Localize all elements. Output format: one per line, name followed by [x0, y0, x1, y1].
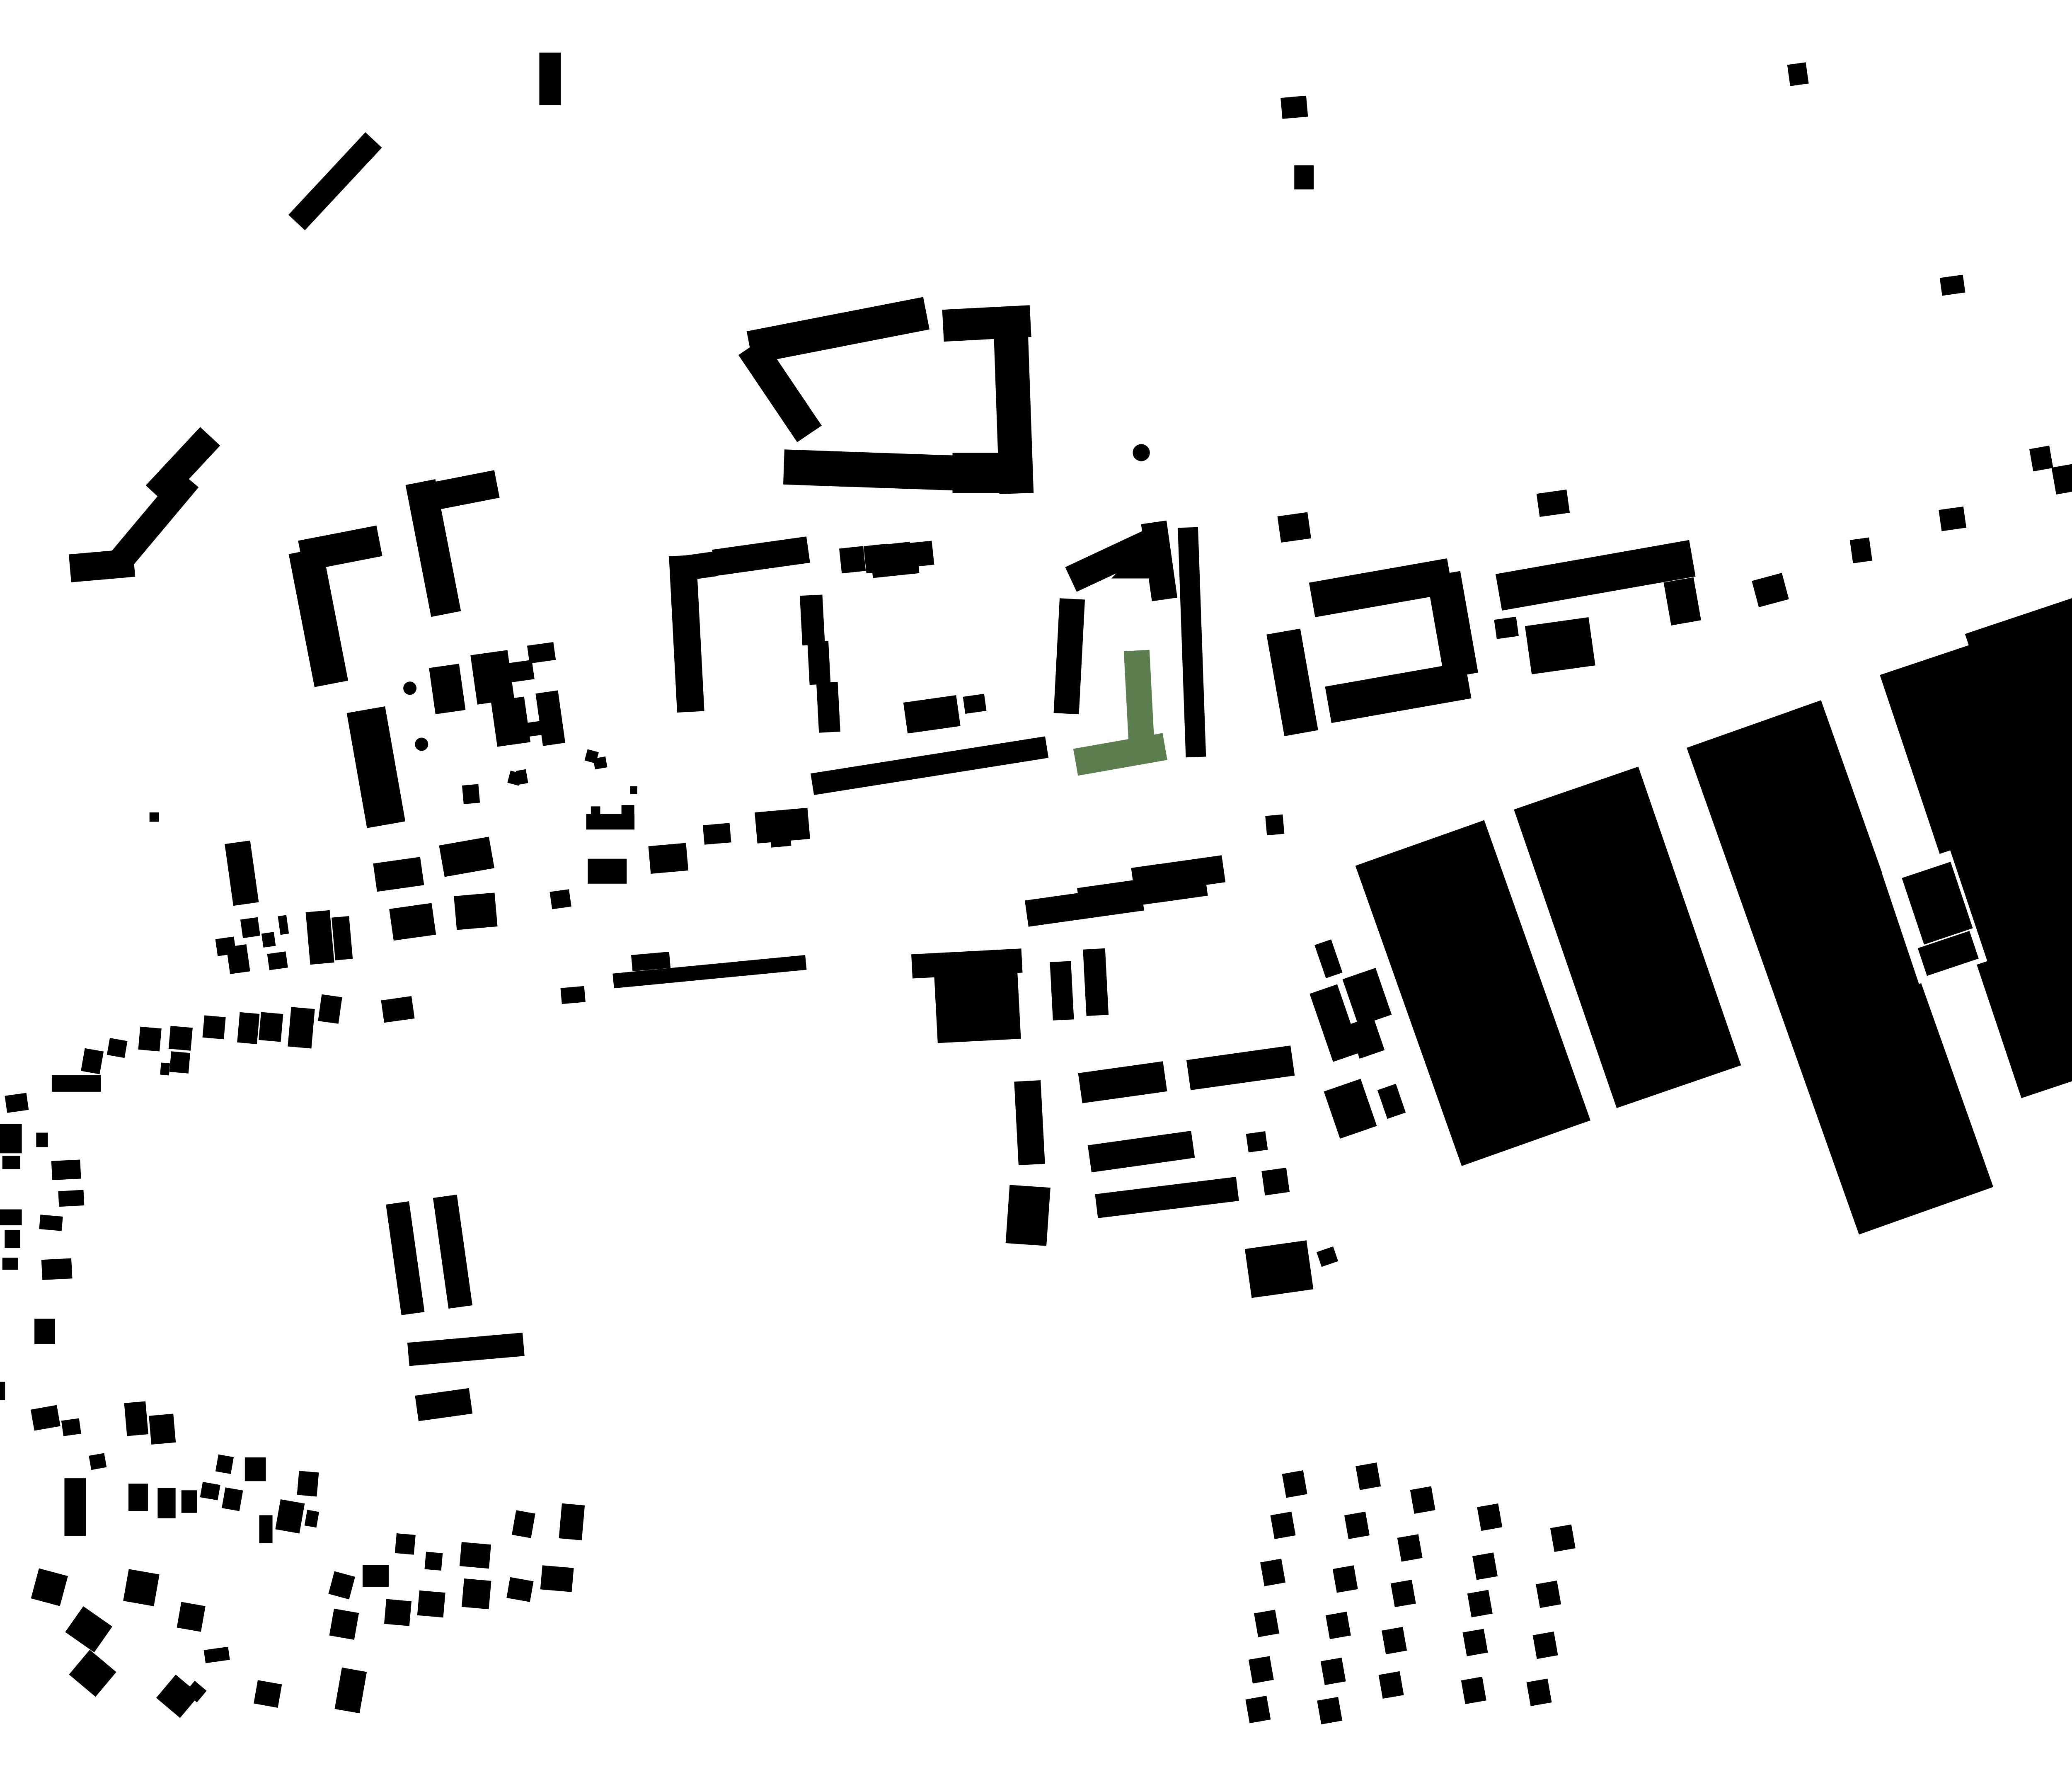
building-footprint	[261, 932, 276, 948]
building-footprint	[417, 1590, 445, 1617]
building-footprint	[81, 1048, 104, 1074]
building-footprint	[1787, 62, 1809, 86]
grid-building-dot	[1410, 1486, 1435, 1514]
grid-building-dot	[1260, 1559, 1285, 1586]
building-footprint	[329, 1609, 359, 1640]
building-footprint	[288, 1007, 315, 1048]
building-footprint	[783, 449, 966, 491]
building-footprint	[1261, 1168, 1290, 1195]
building-footprint	[200, 1482, 220, 1501]
building-footprint	[703, 823, 731, 844]
building-footprint	[1537, 490, 1570, 517]
building-footprint	[39, 1215, 63, 1231]
small-building-dot	[415, 738, 428, 751]
building-footprint	[41, 1258, 73, 1280]
building-footprint	[953, 453, 1031, 493]
building-footprint	[203, 1016, 226, 1040]
building-footprint	[2, 1258, 18, 1270]
building-footprint	[0, 1210, 22, 1226]
grid-building-dot	[1397, 1534, 1423, 1561]
building-footprint	[1246, 1131, 1268, 1152]
building-footprint	[1280, 96, 1308, 119]
building-footprint	[816, 682, 840, 733]
grid-building-dot	[1550, 1525, 1576, 1552]
building-footprint	[1494, 617, 1519, 639]
building-footprint	[1939, 507, 1966, 531]
building-footprint	[318, 994, 342, 1024]
building-footprint	[306, 910, 334, 965]
building-footprint	[0, 1124, 22, 1153]
grid-building-dot	[1356, 1462, 1381, 1490]
building-footprint	[36, 1133, 48, 1147]
building-footprint	[934, 966, 1021, 1043]
building-footprint	[549, 889, 571, 909]
grid-building-dot	[1533, 1632, 1558, 1659]
grid-building-dot	[1249, 1656, 1274, 1683]
building-footprint	[1083, 948, 1109, 1016]
building-footprint	[177, 1602, 206, 1632]
building-footprint	[462, 1578, 491, 1609]
building-footprint	[942, 305, 1031, 342]
building-footprint	[1294, 165, 1314, 189]
grid-building-dot	[1379, 1671, 1404, 1699]
building-footprint	[138, 1027, 161, 1052]
grid-building-dot	[1326, 1612, 1351, 1639]
building-footprint	[384, 1599, 411, 1626]
grid-building-dot	[1254, 1610, 1279, 1637]
highlighted-site-building	[1124, 650, 1154, 741]
grid-building-dot	[1467, 1590, 1493, 1617]
building-footprint	[1014, 1080, 1045, 1165]
small-building-dot	[1133, 444, 1150, 461]
building-footprint	[1278, 512, 1311, 543]
building-footprint	[254, 1680, 282, 1708]
building-footprint	[58, 1190, 84, 1207]
building-footprint	[31, 1405, 61, 1431]
building-footprint	[51, 1159, 81, 1180]
building-footprint	[2, 1156, 20, 1169]
grid-building-dot	[1321, 1658, 1346, 1685]
building-footprint	[460, 1542, 491, 1569]
building-footprint	[424, 1552, 443, 1571]
building-footprint	[2029, 446, 2053, 471]
building-footprint	[240, 917, 260, 938]
building-footprint	[61, 1418, 81, 1436]
building-footprint	[123, 1569, 160, 1606]
building-footprint	[149, 1414, 176, 1445]
grid-building-dot	[1344, 1512, 1370, 1539]
figure-ground-map	[0, 0, 2072, 1765]
building-footprint	[160, 1062, 170, 1075]
building-footprint	[237, 1012, 259, 1044]
building-footprint	[275, 1499, 305, 1533]
building-footprint	[462, 784, 480, 804]
building-footprint	[89, 1453, 107, 1470]
building-footprint	[169, 1026, 193, 1051]
building-footprint	[182, 1490, 197, 1513]
building-footprint	[381, 996, 414, 1023]
building-footprint	[332, 916, 353, 960]
building-footprint	[267, 951, 288, 970]
building-footprint	[124, 1401, 148, 1436]
building-footprint	[429, 664, 465, 714]
building-footprint	[157, 1488, 175, 1518]
building-footprint	[5, 1230, 20, 1248]
building-footprint	[215, 1455, 234, 1474]
building-footprint	[540, 1565, 574, 1592]
building-footprint	[259, 1515, 273, 1543]
building-footprint	[363, 1565, 389, 1587]
building-footprint	[64, 1478, 86, 1536]
grid-building-dot	[1463, 1629, 1488, 1656]
grid-building-dot	[1271, 1512, 1296, 1539]
building-footprint	[1006, 1185, 1051, 1246]
grid-building-dot	[1477, 1503, 1502, 1531]
building-footprint	[34, 1319, 55, 1344]
grid-building-dot	[1472, 1552, 1498, 1580]
grid-building-dot	[1245, 1696, 1271, 1723]
building-footprint	[503, 660, 534, 683]
building-footprint	[630, 786, 637, 794]
grid-building-dot	[1282, 1470, 1307, 1498]
grid-building-dot	[1527, 1679, 1552, 1706]
building-footprint	[586, 814, 634, 830]
building-footprint	[150, 812, 159, 822]
grid-building-dot	[1333, 1565, 1358, 1593]
building-footprint	[560, 986, 585, 1004]
building-footprint	[800, 594, 825, 645]
building-footprint	[631, 952, 670, 971]
building-footprint	[1245, 1240, 1313, 1298]
building-footprint	[1850, 538, 1872, 563]
building-footprint	[169, 1051, 190, 1074]
building-footprint	[222, 1487, 243, 1511]
grid-building-dot	[1317, 1697, 1342, 1724]
grid-building-dot	[1536, 1581, 1561, 1608]
building-footprint	[588, 859, 627, 884]
building-footprint	[1940, 275, 1965, 296]
building-footprint	[128, 1484, 148, 1511]
building-footprint	[1525, 617, 1595, 674]
building-footprint	[559, 1503, 585, 1540]
building-footprint	[226, 944, 250, 974]
building-footprint	[963, 694, 987, 714]
map-canvas	[0, 0, 2072, 1765]
building-footprint	[259, 1012, 283, 1042]
building-footprint	[839, 546, 866, 573]
grid-building-dot	[1391, 1580, 1416, 1607]
building-footprint	[1265, 815, 1284, 835]
building-footprint	[506, 1577, 533, 1602]
building-footprint	[0, 1382, 5, 1400]
building-footprint	[454, 893, 497, 930]
building-footprint	[593, 756, 607, 769]
building-footprint	[5, 1093, 29, 1113]
grid-building-dot	[1382, 1627, 1407, 1654]
building-footprint	[1050, 961, 1074, 1020]
building-footprint	[107, 1038, 128, 1058]
building-footprint	[245, 1457, 266, 1481]
building-footprint	[539, 53, 561, 105]
building-footprint	[770, 837, 791, 848]
building-footprint	[389, 903, 436, 941]
grid-building-dot	[1461, 1677, 1486, 1704]
building-footprint	[491, 697, 530, 747]
building-footprint	[297, 1471, 319, 1496]
building-footprint	[649, 843, 689, 874]
building-footprint	[395, 1533, 416, 1555]
small-building-dot	[403, 681, 416, 695]
building-footprint	[807, 641, 830, 685]
building-footprint	[52, 1075, 101, 1091]
